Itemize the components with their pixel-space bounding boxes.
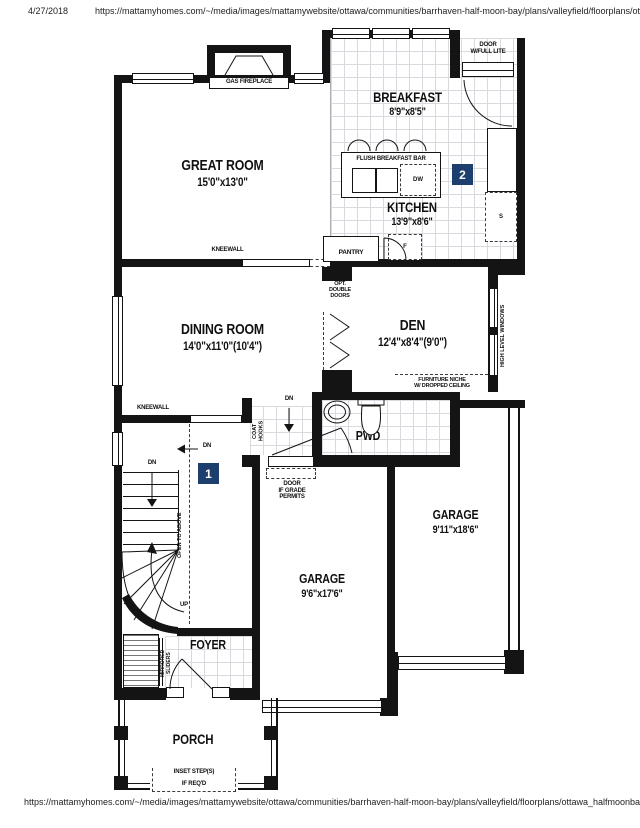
toilet-tank <box>358 398 384 405</box>
rear-door-swing-arc <box>464 80 512 126</box>
pwd-sink-basin <box>329 405 346 419</box>
pwd-sink <box>324 401 350 423</box>
arrowhead-down <box>147 499 157 507</box>
fireplace-glyph <box>225 56 273 75</box>
arrowhead-up <box>147 542 157 554</box>
pwd-door-swing <box>272 428 352 455</box>
arrowhead-left <box>177 445 185 454</box>
breakfast-bar-stools <box>348 140 426 151</box>
pantry-door-swing <box>384 238 406 260</box>
front-door-swing <box>170 659 212 689</box>
winder-treads <box>122 550 178 629</box>
plan-linework <box>0 0 640 828</box>
print-page: 4/27/2018 https://mattamyhomes.com/~/med… <box>0 0 640 828</box>
arrowhead-down <box>284 424 294 432</box>
stair-curved-wall <box>122 594 178 634</box>
opt-double-doors-glyph <box>330 314 349 368</box>
toilet-bowl <box>361 406 380 435</box>
